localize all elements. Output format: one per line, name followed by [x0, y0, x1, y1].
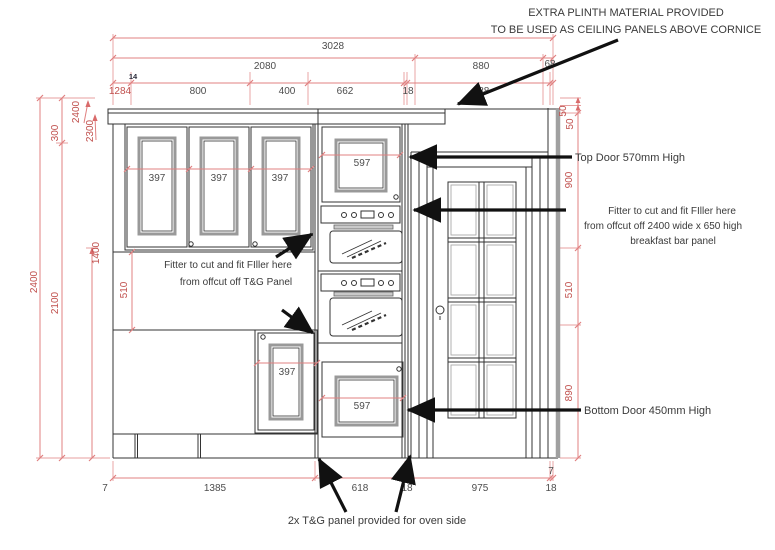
note-bottom-door: Bottom Door 450mm High — [584, 405, 711, 417]
dim-880: 880 — [473, 61, 490, 72]
oven1-handle — [334, 225, 393, 229]
note-filler-left-1: Fitter to cut and fit FIller here — [164, 260, 292, 271]
dim-leader-2300: 2300 — [85, 119, 96, 142]
dim-900: 900 — [564, 171, 575, 188]
dim-50-a: 50 — [558, 105, 569, 117]
oven2-handle — [334, 292, 393, 296]
dim-left-300: 300 — [50, 124, 61, 141]
note-filler-right-3: breakfast bar panel — [630, 236, 716, 247]
note-extra-plinth-1: EXTRA PLINTH MATERIAL PROVIDED — [528, 7, 724, 19]
dim-14: 14 — [129, 72, 138, 81]
dim-3028: 3028 — [322, 41, 345, 52]
dim-2080: 2080 — [254, 61, 277, 72]
note-filler-right-2: from offcut off 2400 wide x 650 high — [584, 221, 742, 232]
dim-890: 890 — [564, 384, 575, 401]
note-filler-right-1: Fitter to cut and fit FIller here — [608, 206, 736, 217]
dim-510-left: 510 — [119, 281, 130, 298]
note-filler-left-2: from offcut off T&G Panel — [180, 277, 292, 288]
dim-18-top: 18 — [402, 86, 414, 97]
note-tg-panel: 2x T&G panel provided for oven side — [288, 515, 466, 527]
note-extra-plinth-2: TO BE USED AS CEILING PANELS ABOVE CORNI… — [491, 24, 761, 36]
note-top-door: Top Door 570mm High — [575, 152, 685, 164]
dim-975: 975 — [472, 483, 489, 494]
dim-662: 662 — [337, 86, 354, 97]
dim-1284: 1284 — [109, 86, 132, 97]
dim-18-bottom-b: 18 — [545, 483, 557, 494]
elevation-svg: 3028 2080 880 68 1284 14 800 400 662 18 … — [0, 0, 775, 550]
dim-397-base: 397 — [279, 367, 296, 378]
dim-1400: 1400 — [91, 241, 102, 264]
dim-510-right: 510 — [564, 281, 575, 298]
dim-50-b: 50 — [565, 118, 576, 130]
dim-7-left: 7 — [102, 483, 108, 494]
dim-618: 618 — [352, 483, 369, 494]
dim-597-bottom: 597 — [354, 401, 371, 412]
dim-800: 800 — [190, 86, 207, 97]
kitchen-elevation-drawing: 3028 2080 880 68 1284 14 800 400 662 18 … — [0, 0, 775, 550]
dim-1385: 1385 — [204, 483, 227, 494]
dim-left-2100: 2100 — [50, 291, 61, 314]
dim-397-a: 397 — [149, 173, 166, 184]
dim-400: 400 — [279, 86, 296, 97]
dim-597-top: 597 — [354, 158, 371, 169]
dim-left-2400: 2400 — [29, 270, 40, 293]
dim-7-right: 7 — [548, 466, 554, 477]
dim-leader-2400: 2400 — [71, 100, 82, 123]
dim-397-c: 397 — [272, 173, 289, 184]
dim-397-b: 397 — [211, 173, 228, 184]
